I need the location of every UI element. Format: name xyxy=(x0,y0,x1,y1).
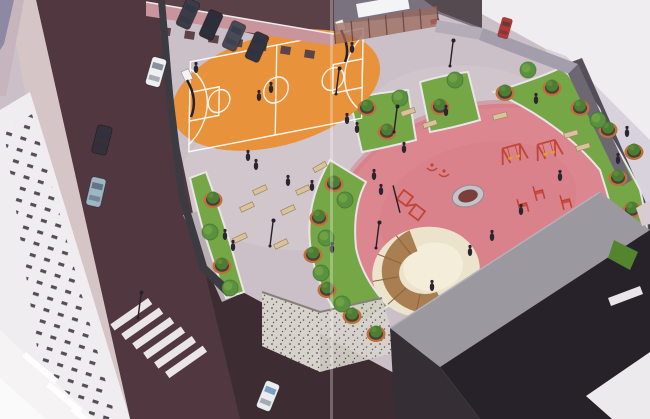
person xyxy=(558,170,562,181)
person xyxy=(286,175,290,186)
person xyxy=(223,229,227,240)
person xyxy=(534,93,538,104)
person xyxy=(490,230,494,241)
person xyxy=(355,122,359,133)
tree xyxy=(313,265,329,281)
photo-fold-line xyxy=(330,0,333,419)
tree xyxy=(447,72,463,88)
tree xyxy=(392,90,408,106)
rendering-canvas xyxy=(0,0,650,419)
person xyxy=(444,105,448,116)
person xyxy=(430,280,434,291)
wall-door xyxy=(304,49,315,58)
person xyxy=(269,82,273,93)
tree xyxy=(202,224,218,240)
person xyxy=(468,245,472,256)
tree xyxy=(222,280,238,296)
person xyxy=(350,42,354,53)
tree xyxy=(334,296,350,312)
person xyxy=(231,240,235,251)
person xyxy=(519,204,523,215)
person xyxy=(616,153,620,164)
person xyxy=(379,184,383,195)
aerial-park-rendering xyxy=(0,0,650,419)
person xyxy=(372,169,376,180)
person xyxy=(194,62,198,73)
tree xyxy=(520,62,536,78)
tree xyxy=(337,192,353,208)
wall-door xyxy=(184,30,195,39)
person xyxy=(402,142,406,153)
person xyxy=(257,90,261,101)
person xyxy=(310,180,314,191)
person xyxy=(625,126,629,137)
wall-door xyxy=(280,46,291,55)
person xyxy=(345,113,349,124)
person xyxy=(246,150,250,161)
tree xyxy=(590,112,606,128)
person xyxy=(254,159,258,170)
